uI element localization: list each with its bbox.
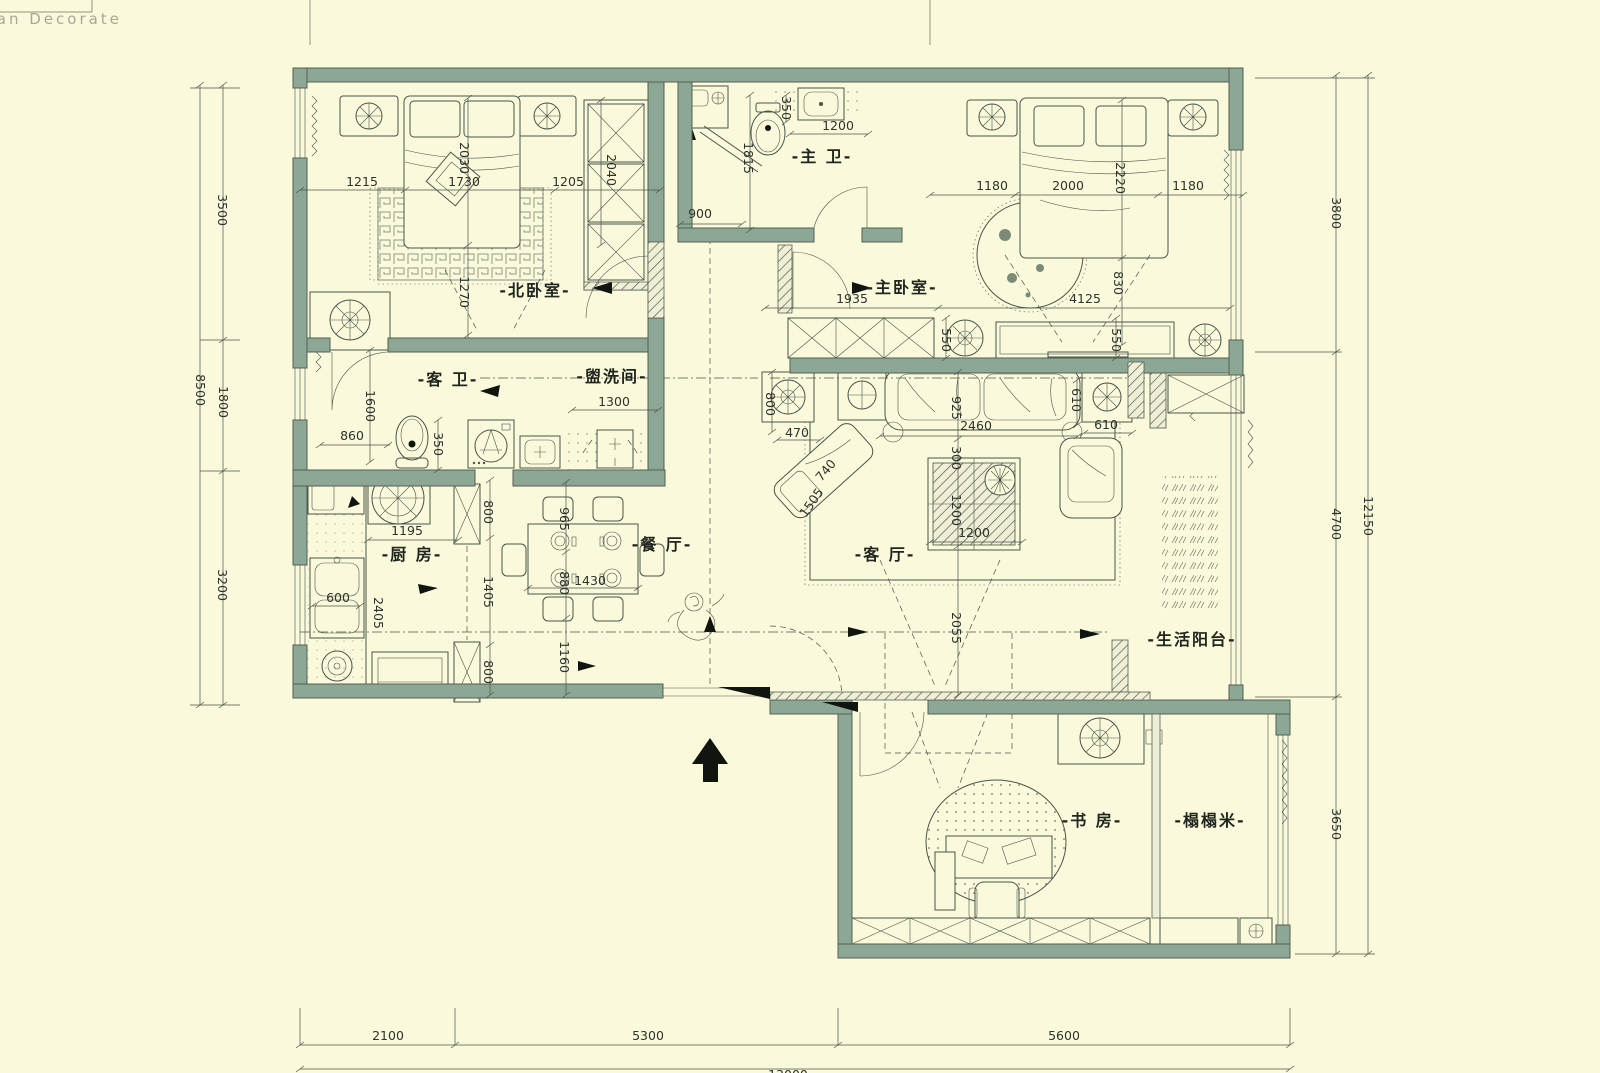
floor-plan: anan Decorate -北卧室- -主卧室- -主 卫- -客 卫- -盥… [0,0,1600,1073]
dim: 550 [939,328,954,352]
lamp-icon [979,104,1005,130]
dim: 1600 [363,390,378,422]
dim: 1160 [557,641,572,673]
room-label-study: -书 房- [1062,811,1123,830]
dim: 1800 [216,386,231,418]
dim: 1195 [391,523,423,538]
dim: 610 [1069,388,1084,412]
dim: 470 [785,425,809,440]
dim: 2405 [371,597,386,629]
cabinet [1058,712,1162,764]
dim: 4125 [1069,291,1101,306]
dim: 3500 [215,194,230,226]
fan-icon [1189,324,1221,356]
dim: 550 [1109,328,1124,352]
dim: 3800 [1329,197,1344,229]
room-label-kitchen: -厨 房- [382,545,443,564]
dim: 965 [557,507,572,531]
toilet-icon [396,416,428,468]
room-label-washroom: -盥洗间- [576,367,647,386]
dim: 800 [763,392,778,416]
dim: 900 [688,206,712,221]
dim: 5600 [1048,1028,1080,1043]
dim-total: 13000 [768,1067,808,1073]
dim: 3200 [215,569,230,601]
dim: 830 [1111,271,1126,295]
tv-cabinet [996,322,1174,358]
dim: 610 [1094,417,1118,432]
dim: 1215 [346,174,378,189]
sink-icon [520,436,560,468]
dim: 600 [326,590,350,605]
dim: 1405 [481,576,496,608]
dim: 1730 [448,174,480,189]
dim: 1200 [958,525,990,540]
dim: 8500 [193,374,208,406]
wardrobe-row [788,318,1221,358]
label-arrow [418,584,438,594]
plant-icon [985,465,1015,495]
dim: 2100 [372,1028,404,1043]
room-label-north-bedroom: -北卧室- [499,281,570,300]
dim: 12150 [1361,496,1376,536]
master-bath-door [812,187,867,242]
dim: 350 [431,432,446,456]
lamp-icon [1180,104,1206,130]
logo-text: anan Decorate [0,10,122,28]
curtain [1224,150,1229,200]
washroom-basin-icon [597,430,633,468]
dim: 1430 [574,573,606,588]
dim: 1180 [976,178,1008,193]
person-figure [668,593,724,640]
chair [593,497,623,521]
dim: 1300 [598,394,630,409]
dim: 1205 [552,174,584,189]
north-bedroom-furniture [310,96,648,350]
floor-plan-drawing: anan Decorate -北卧室- -主卧室- -主 卫- -客 卫- -盥… [0,0,1600,1073]
sink-icon [798,88,844,120]
dim: 925 [949,396,964,420]
room-label-balcony: -生活阳台- [1147,630,1236,649]
lamp-icon [1093,383,1121,411]
dim: 800 [481,500,496,524]
kitchen-sliding-door [454,484,480,702]
label-arrow [480,385,500,397]
dim: 2040 [604,154,619,186]
dim: 1815 [741,142,756,174]
room-label-guest-bath: -客 卫- [418,370,479,389]
dim: 2460 [960,418,992,433]
dim: 1935 [836,291,868,306]
north-arrow [692,738,728,782]
balcony-furniture [1168,375,1253,468]
chair [543,597,573,621]
lamp-icon [848,381,876,409]
dim: 300 [949,446,964,470]
dim: 3650 [1329,808,1344,840]
wardrobe [584,100,648,290]
dim: 1270 [457,276,472,308]
dim: 1200 [949,494,964,526]
label-arrow [578,661,596,671]
dim: 2220 [1113,162,1128,194]
dim: 2030 [457,142,472,174]
balcony-plants [1162,476,1218,611]
chair [593,597,623,621]
label-arrow [1080,629,1100,639]
curtain [312,96,317,156]
tatami-partition [1152,714,1160,918]
guest-bath-door [332,352,390,410]
dim: 1180 [1172,178,1204,193]
dim: 4700 [1329,508,1344,540]
room-label-living: -客 厅- [855,545,916,564]
curtain [1248,420,1253,468]
label-arrow [848,627,868,637]
armchair [1060,438,1122,518]
entry-door-leaf [718,687,770,699]
dim: 1200 [822,118,854,133]
room-label-master-bath: -主 卫- [792,147,853,166]
lamp-icon [534,103,560,129]
window-sill-cabinets [852,918,1272,944]
tv-column [1150,372,1166,428]
entry-door-swing [770,626,842,698]
study-door [860,712,924,776]
dim: 2000 [1052,178,1084,193]
dim: 5300 [632,1028,664,1043]
dim: 860 [340,428,364,443]
fan-icon [1080,718,1120,758]
dining-furniture [502,497,664,621]
chair [502,544,526,576]
fan-icon [330,300,370,340]
room-label-tatami: -榻榻米- [1174,811,1245,830]
room-label-master-bedroom: -主卧室- [866,278,937,297]
lamp-icon [356,103,382,129]
washing-machine-icon [468,420,514,468]
dim: 350 [779,96,794,120]
logo: anan Decorate [0,0,930,45]
dim: 880 [557,571,572,595]
room-label-dining: -餐 厅- [632,535,693,554]
dim: 800 [481,660,496,684]
dim: 2055 [949,612,964,644]
